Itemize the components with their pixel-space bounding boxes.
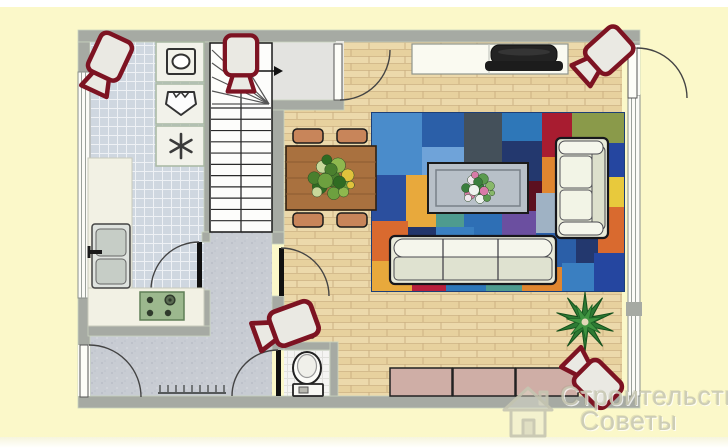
wall-kitchen-bottom [88,326,210,336]
cctv-camera-icon [225,35,257,91]
wall-hall-living-a [272,232,284,244]
bench-section [390,368,452,396]
loveseat [556,138,608,238]
dining-chair [293,129,323,143]
wall-kitchen-stairs [204,42,210,232]
wall-stairs-living [272,110,284,232]
wall-bottom [78,396,640,408]
appliance-column [156,42,204,166]
sofa-three-seat [390,236,556,284]
dining-chair [337,213,367,227]
door-balcony [628,45,687,98]
dining-chair [293,213,323,227]
stove [140,292,184,320]
wall-kitchen-hall-a [202,232,210,242]
storage-bench [390,368,578,396]
floor-plan-canvas [0,0,728,448]
wall-landing-bottom [272,100,344,110]
kitchen-sink [88,224,130,288]
bench-section [453,368,515,396]
wall-top [78,30,640,42]
window-right [626,95,642,396]
dining-chair [337,129,367,143]
tv [485,45,563,71]
radiator-grate [158,385,226,393]
wall-wc-right [330,342,338,396]
window-mullion [626,302,642,316]
toilet [293,352,323,396]
